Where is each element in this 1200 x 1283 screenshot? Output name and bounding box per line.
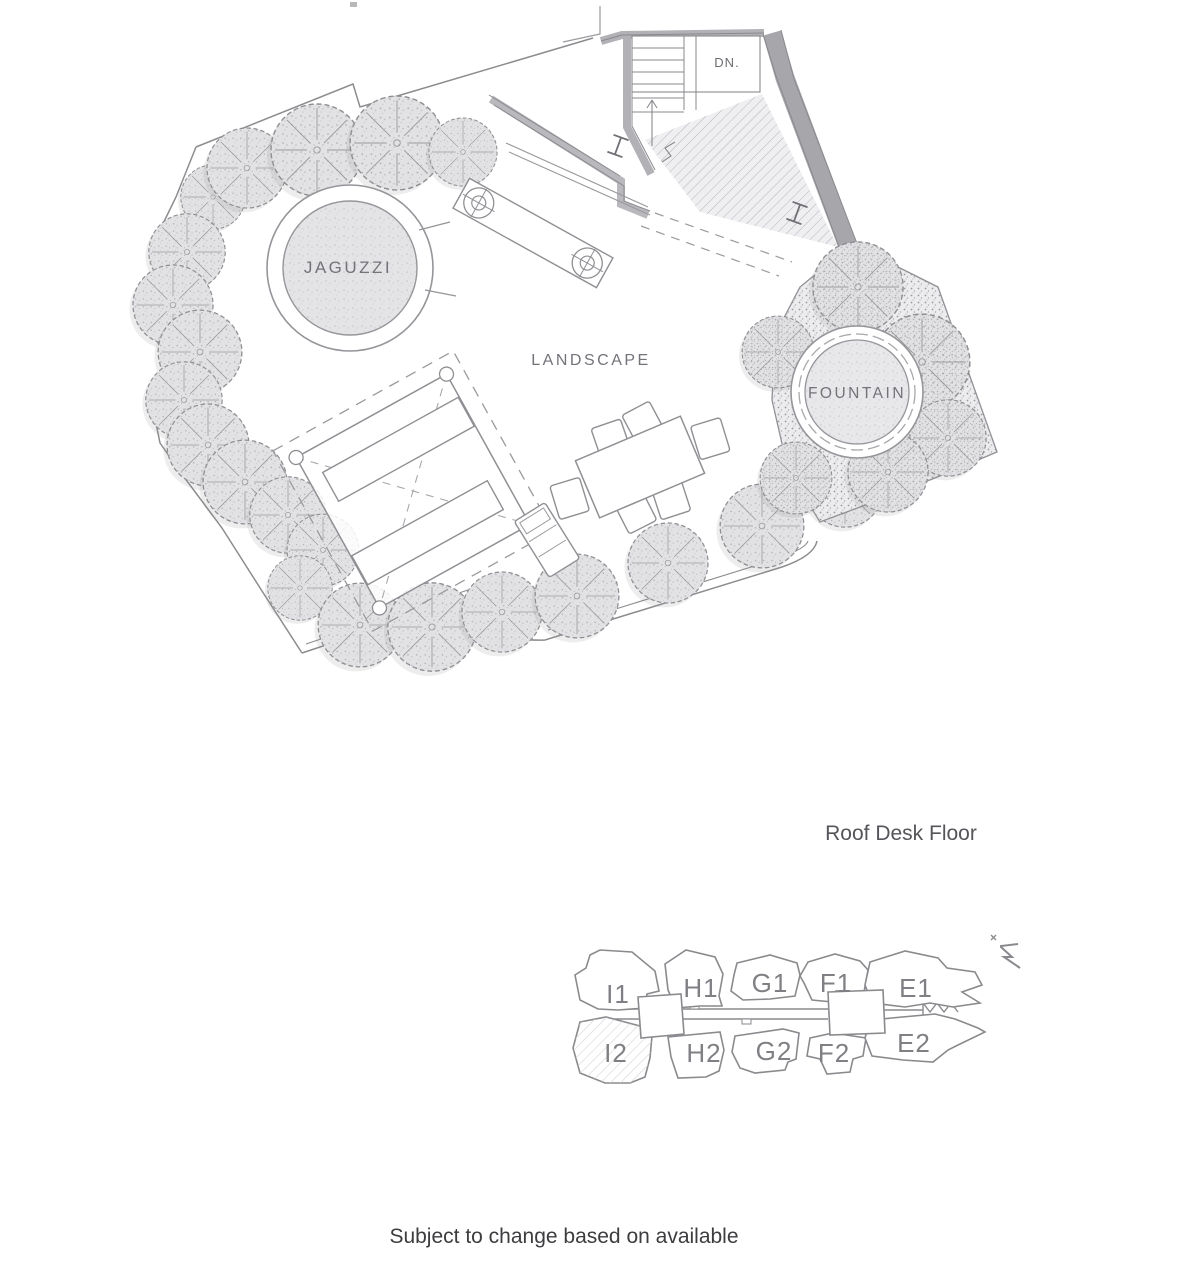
roof-deck-plan: JAGUZZI: [130, 2, 998, 676]
key-plan: I1 H1 G1 F1 E1 I2 H2 G2 F2 E2: [573, 935, 1020, 1083]
unit-label-H1: H1: [683, 973, 718, 1003]
jacuzzi-step-line: [419, 222, 450, 230]
bench: [453, 178, 613, 287]
unit-label-G2: G2: [756, 1036, 793, 1066]
unit-label-I1: I1: [606, 979, 630, 1009]
jacuzzi-label: JAGUZZI: [304, 258, 392, 277]
unit-label-H2: H2: [686, 1038, 721, 1068]
stairs-down-label: DN.: [714, 55, 739, 70]
jacuzzi: JAGUZZI: [267, 185, 456, 351]
unit-label-I2: I2: [604, 1038, 628, 1068]
scanned-floor-plan-sheet: JAGUZZI: [0, 0, 1200, 1283]
unit-label-E1: E1: [899, 973, 933, 1003]
landscape-label: LANDSCAPE: [531, 352, 650, 369]
fountain-label: FOUNTAIN: [808, 385, 906, 402]
core-block: [638, 994, 684, 1038]
scan-smudge: [350, 2, 357, 7]
unit-label-F2: F2: [818, 1038, 850, 1068]
scan-edge-line: [563, 6, 600, 42]
stairwell: DN.: [601, 30, 858, 252]
disclaimer-text: Subject to change based on available: [389, 1225, 738, 1248]
fountain: FOUNTAIN: [791, 326, 923, 458]
unit-label-E2: E2: [897, 1028, 931, 1058]
chair: [550, 477, 590, 520]
north-arrow-icon: [991, 935, 1020, 968]
floor-plan-drawing: JAGUZZI: [0, 0, 1200, 1283]
unit-label-G1: G1: [752, 968, 789, 998]
floor-title: Roof Desk Floor: [825, 822, 977, 845]
walk-dashed-edge: [641, 226, 779, 276]
hose-bib-symbol: [607, 135, 628, 157]
unit-label-F1: F1: [820, 968, 852, 998]
fountain-planting-bed: FOUNTAIN: [739, 242, 997, 522]
